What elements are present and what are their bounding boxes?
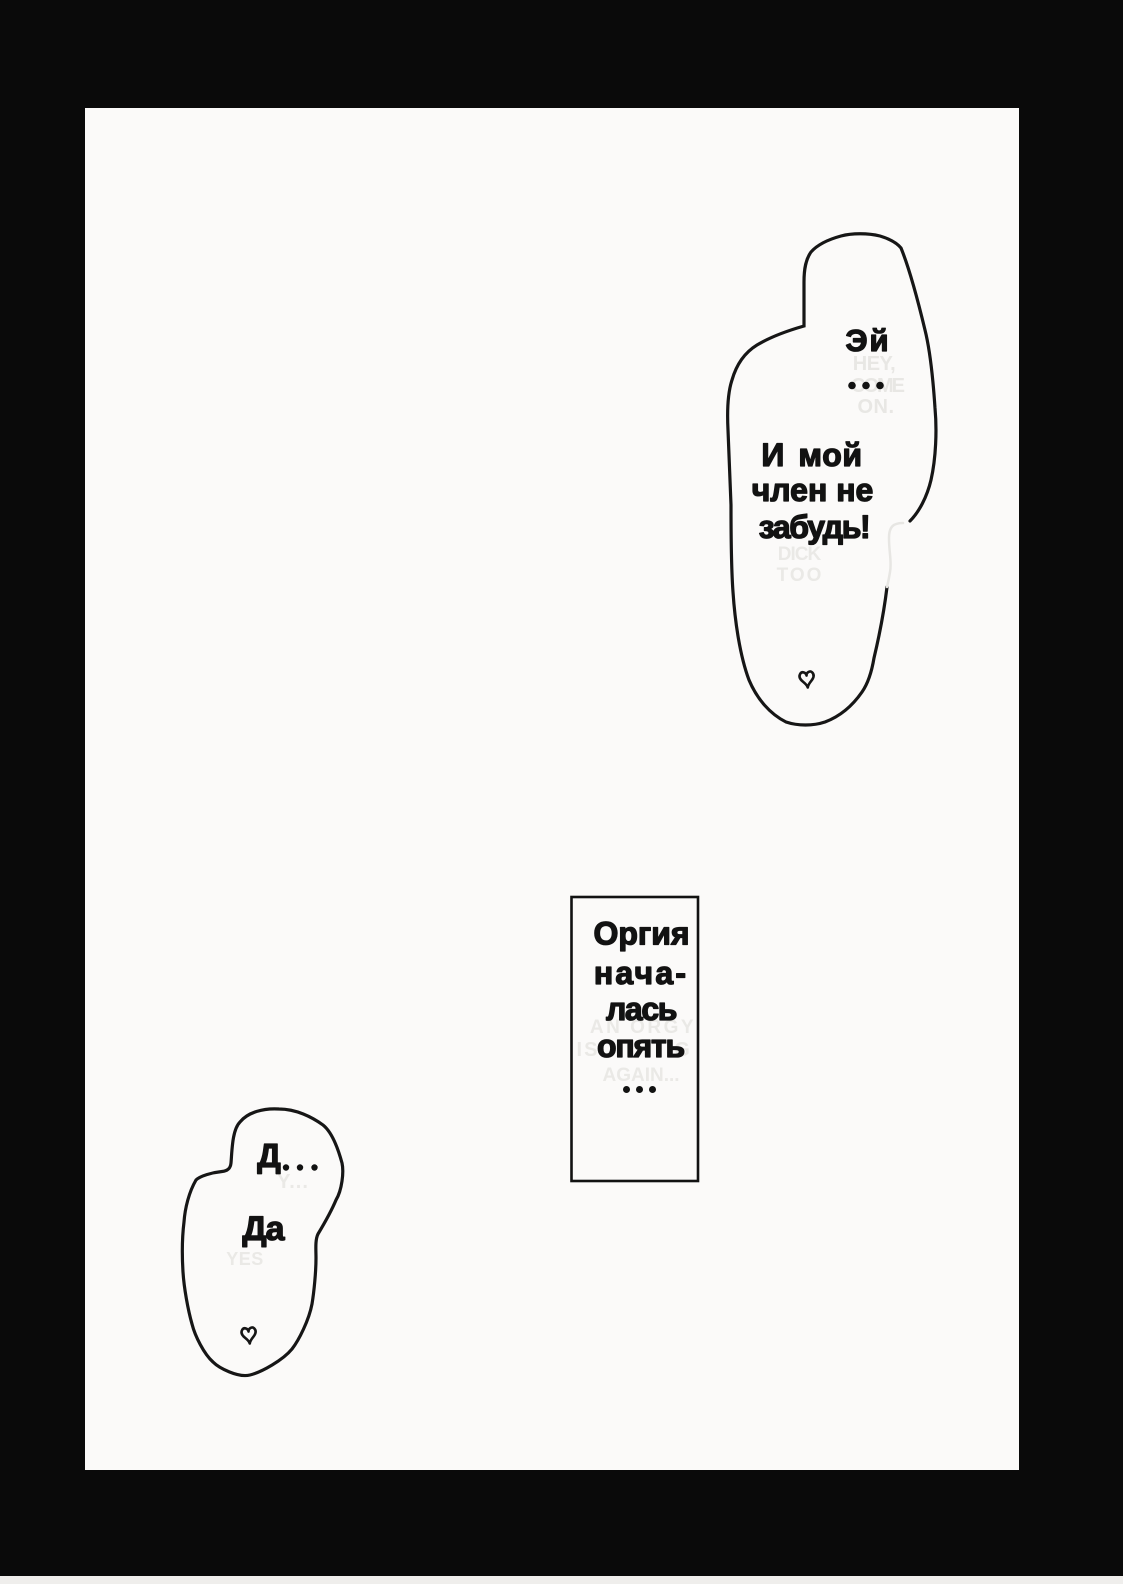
svg-text:Оргия: Оргия — [593, 916, 689, 952]
svg-text:член не: член не — [752, 472, 874, 508]
svg-text:И мой: И мой — [761, 437, 862, 473]
svg-text:опять: опять — [597, 1028, 684, 1064]
svg-text:забудь!: забудь! — [759, 509, 869, 545]
svg-text:Эй: Эй — [845, 323, 890, 358]
svg-text:IS: IS — [577, 1039, 600, 1061]
svg-text:ON.: ON. — [857, 396, 894, 418]
svg-text:лась: лась — [606, 991, 677, 1027]
svg-text:YES: YES — [226, 1249, 264, 1269]
svg-text:Да: Да — [242, 1210, 285, 1248]
svg-text:TOO: TOO — [777, 565, 824, 586]
svg-text:Y...: Y... — [277, 1171, 309, 1193]
svg-text:Д: Д — [257, 1137, 281, 1174]
svg-text:AGAIN...: AGAIN... — [602, 1065, 679, 1086]
svg-text:нача-: нача- — [594, 955, 688, 991]
svg-text:DICK: DICK — [778, 544, 822, 565]
